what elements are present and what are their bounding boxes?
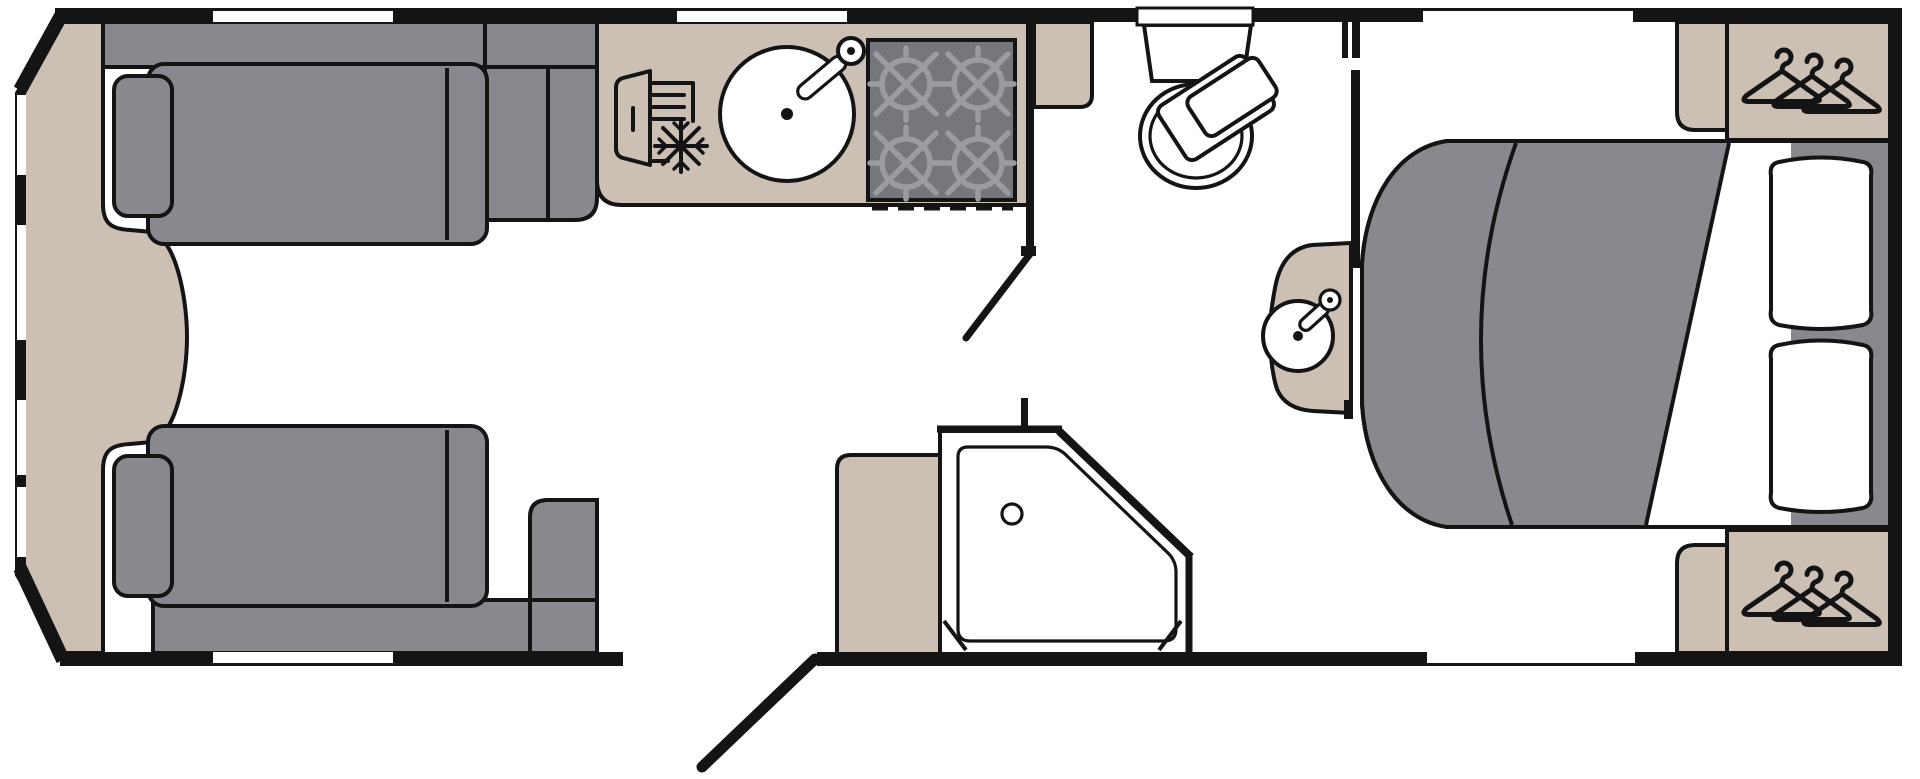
hob	[868, 40, 1015, 208]
window	[1423, 11, 1633, 22]
window	[1427, 652, 1635, 663]
sofa-corner-unit	[530, 500, 597, 653]
washroom-cabinet	[1034, 22, 1092, 107]
shower-side-cabinet	[837, 455, 940, 655]
shower-wall-jamb	[1021, 398, 1028, 429]
sofa-backrest	[103, 22, 487, 67]
wardrobe-top	[1727, 22, 1893, 140]
window	[213, 652, 393, 663]
window-above-toilet	[1137, 8, 1253, 25]
sofa-corner-unit	[485, 22, 597, 220]
wall-bedroom-stub	[1344, 400, 1353, 419]
snowflake-icon	[655, 120, 707, 172]
sofa-seat	[148, 426, 487, 606]
bedside-cabinet-top	[1677, 22, 1727, 130]
wall-washroom	[1026, 22, 1034, 255]
floorplan-canvas	[0, 0, 1920, 779]
pillow	[1771, 158, 1872, 330]
sofa-end-cushion	[114, 456, 172, 596]
front-window	[17, 400, 26, 475]
front-window	[17, 487, 26, 557]
burner-icon	[870, 127, 942, 199]
tap-dot	[1327, 297, 1333, 303]
bedroom-sliding-door	[1342, 22, 1348, 58]
sofa-end-cushion	[114, 76, 172, 216]
island-bed	[1362, 141, 1893, 527]
sofa-seat	[148, 64, 487, 244]
window	[677, 11, 847, 22]
tap-dot	[847, 47, 855, 55]
front-window	[17, 225, 26, 340]
drain-icon	[1002, 504, 1022, 524]
plughole	[781, 108, 793, 120]
wall-bottom-right	[817, 652, 1902, 666]
burner-icon	[870, 48, 942, 120]
pillow	[1771, 341, 1872, 513]
window	[213, 11, 393, 22]
burner-icon	[942, 127, 1014, 199]
front-window	[17, 95, 26, 175]
lounge-sofa-top	[103, 22, 597, 244]
wall-bedroom-divider	[1351, 70, 1360, 268]
bedside-cabinet-bottom	[1677, 545, 1727, 653]
plughole	[1293, 331, 1303, 341]
caravan-floorplan	[0, 0, 1920, 779]
wall-bedroom-divider	[1352, 22, 1360, 58]
wall-right	[1888, 8, 1902, 666]
burner-icon	[942, 48, 1014, 120]
